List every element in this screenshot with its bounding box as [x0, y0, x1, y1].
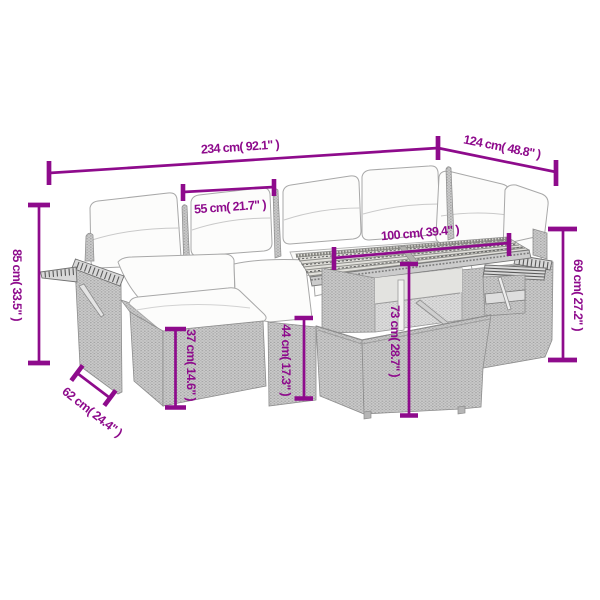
svg-text:69 cm( 27.2" ): 69 cm( 27.2" ) — [571, 259, 585, 331]
svg-text:85 cm( 33.5" ): 85 cm( 33.5" ) — [10, 249, 24, 321]
svg-text:73 cm( 28.7" ): 73 cm( 28.7" ) — [388, 305, 402, 377]
svg-text:37 cm( 14.6" ): 37 cm( 14.6" ) — [184, 329, 198, 401]
svg-text:44 cm( 17.3" ): 44 cm( 17.3" ) — [279, 324, 293, 396]
